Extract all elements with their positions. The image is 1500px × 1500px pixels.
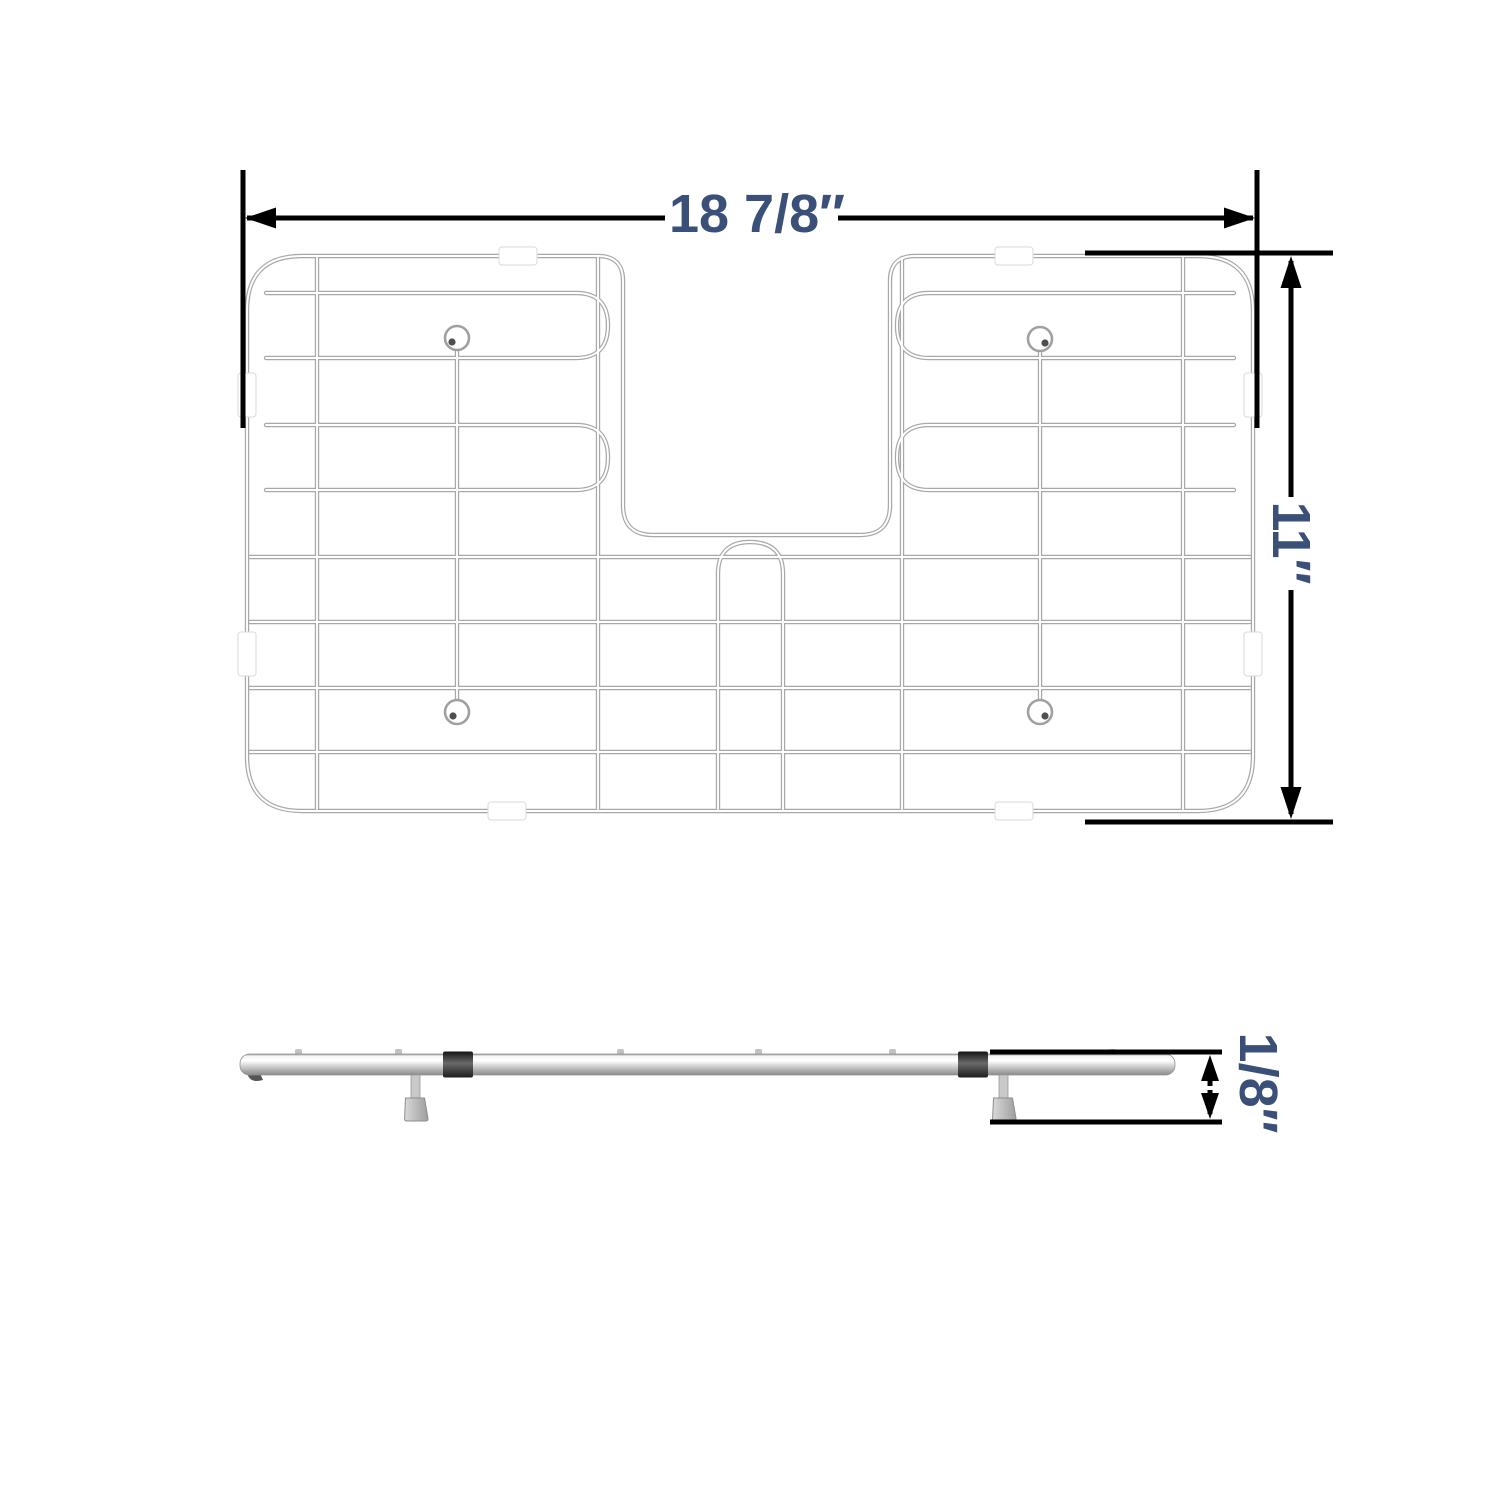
rim-clip xyxy=(995,802,1033,820)
profile-foot xyxy=(405,1075,428,1121)
height-dimension-label: 11″ xyxy=(1264,502,1318,585)
arrowhead-up xyxy=(1201,1055,1219,1081)
arrowhead-right xyxy=(1224,208,1255,229)
grid-feet-top xyxy=(445,326,1052,724)
rim-clip xyxy=(499,247,537,265)
foot-pad xyxy=(405,1098,428,1121)
rim-clip xyxy=(238,632,256,676)
profile-sleeve xyxy=(958,1052,988,1078)
rim-clip xyxy=(488,802,526,820)
profile-sleeve xyxy=(443,1052,473,1078)
foot xyxy=(1028,327,1052,351)
grid-top-view xyxy=(238,247,1262,820)
profile-foot xyxy=(993,1075,1016,1121)
foot xyxy=(445,326,469,350)
foot-dot xyxy=(1041,712,1048,719)
foot-stem xyxy=(999,1075,1008,1099)
arrowhead-up xyxy=(1281,256,1302,288)
arrowhead-down xyxy=(1281,787,1302,819)
foot xyxy=(445,700,469,724)
grid-profile-bar xyxy=(240,1054,1175,1075)
grid-side-view xyxy=(240,1049,1175,1121)
foot-dot xyxy=(1041,339,1048,346)
arrowhead-down xyxy=(1201,1093,1219,1119)
foot-pad xyxy=(993,1098,1016,1121)
foot xyxy=(1028,700,1052,724)
grid-wires-outline xyxy=(247,256,1253,811)
thickness-dimension-label: 1/8″ xyxy=(1231,1033,1285,1134)
arrowhead-left xyxy=(245,208,276,229)
foot-stem xyxy=(411,1075,420,1099)
foot-dot xyxy=(449,712,456,719)
foot-dot xyxy=(448,338,455,345)
rim-clip xyxy=(1244,632,1262,676)
rim-clip xyxy=(995,247,1033,265)
width-dimension-label: 18 7/8″ xyxy=(669,187,845,241)
